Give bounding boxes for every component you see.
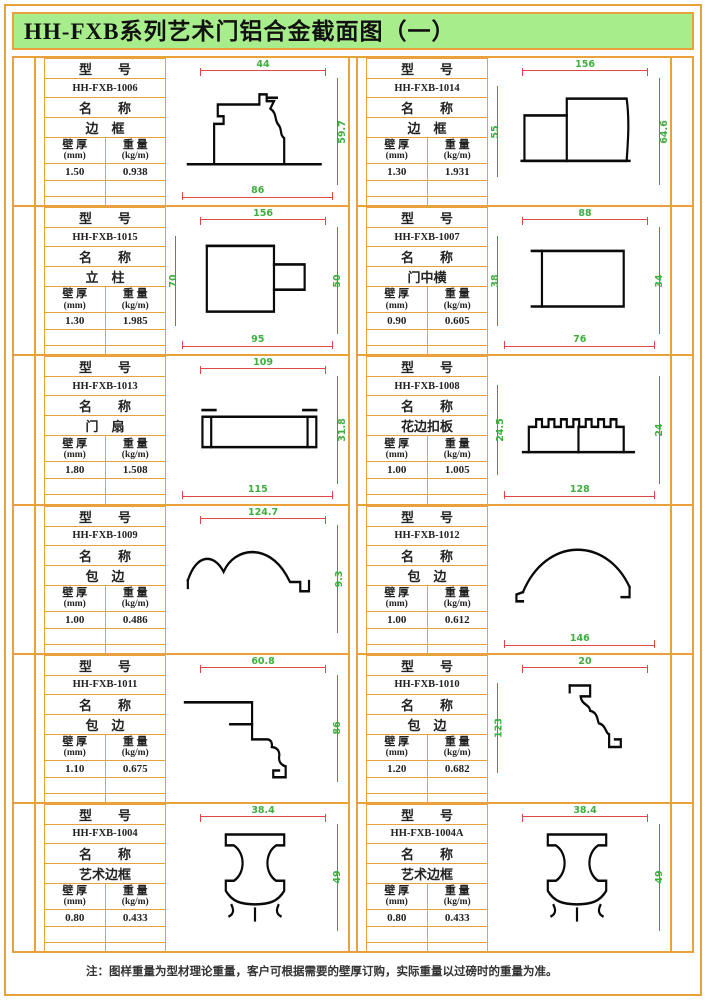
dimension-bottom: 76 xyxy=(504,338,655,350)
empty-cell xyxy=(427,777,488,793)
profile-outline xyxy=(523,549,630,591)
dimension-value: 156 xyxy=(522,59,649,70)
dimension-value: 50 xyxy=(332,274,343,287)
empty-cell xyxy=(367,181,428,197)
dimension-line xyxy=(337,227,338,334)
model-label: 型 号 xyxy=(367,208,488,228)
thickness-value: 1.20 xyxy=(367,760,428,777)
thickness-value: 1.10 xyxy=(45,760,106,777)
name-label: 名 称 xyxy=(45,98,166,118)
spec-table: 型 号 HH-FXB-1012 名 称 包 边 壁 厚(mm) 重 量(kg/m… xyxy=(366,506,488,655)
name-value: 包 边 xyxy=(367,714,488,734)
thickness-value: 0.80 xyxy=(45,909,106,926)
profile-outline xyxy=(532,251,542,307)
dimension-left: 24.5 xyxy=(491,385,503,475)
empty-cell xyxy=(45,628,106,644)
empty-cell xyxy=(367,628,428,644)
profile-panel: 型 号 HH-FXB-1004A 名 称 艺术边框 壁 厚(mm) 重 量(kg… xyxy=(358,804,670,951)
empty-cell xyxy=(105,197,166,208)
name-label: 名 称 xyxy=(45,694,166,714)
empty-cell xyxy=(45,793,106,804)
gutter-cell xyxy=(672,655,692,804)
dimension-line xyxy=(182,346,333,347)
thickness-value: 1.50 xyxy=(45,164,106,181)
name-value: 花边扣板 xyxy=(367,416,488,436)
dimension-value: 59.7 xyxy=(337,120,348,143)
dimension-line xyxy=(497,385,498,475)
empty-cell xyxy=(105,479,166,495)
empty-cell xyxy=(45,495,106,506)
cross-section-svg xyxy=(504,523,650,634)
left-gutter-column xyxy=(12,58,36,951)
dimension-top: 124.7 xyxy=(200,509,327,521)
name-label: 名 称 xyxy=(45,843,166,863)
weight-header: 重 量(kg/m) xyxy=(427,734,488,760)
profile-outline xyxy=(229,905,280,920)
name-label: 名 称 xyxy=(367,98,488,118)
empty-cell xyxy=(105,346,166,357)
thickness-header: 壁 厚(mm) xyxy=(45,883,106,909)
name-value: 边 框 xyxy=(367,118,488,138)
spec-table: 型 号 HH-FXB-1008 名 称 花边扣板 壁 厚(mm) 重 量(kg/… xyxy=(366,356,488,505)
profile-drawing: 10911531.8 xyxy=(168,359,344,500)
weight-header: 重 量(kg/m) xyxy=(105,138,166,164)
center-divider xyxy=(348,58,358,951)
profile-drawing: 1565564.6 xyxy=(490,61,666,202)
empty-cell xyxy=(45,926,106,942)
dimension-line xyxy=(522,70,649,71)
profile-outline xyxy=(529,420,624,453)
dimension-value: 49 xyxy=(332,871,343,884)
profile-outline xyxy=(185,702,252,724)
profile-outline xyxy=(226,834,284,904)
profile-outline xyxy=(214,94,284,164)
gutter-cell xyxy=(672,804,692,951)
dimension-value: 128 xyxy=(504,484,655,495)
dimension-value: 38.4 xyxy=(200,805,327,816)
empty-cell xyxy=(427,479,488,495)
dimension-line xyxy=(522,667,649,668)
profile-panel: 型 号 HH-FXB-1011 名 称 包 边 壁 厚(mm) 重 量(kg/m… xyxy=(36,655,348,804)
gutter-cell xyxy=(672,356,692,505)
weight-value: 1.985 xyxy=(105,313,166,330)
profile-drawing: 146 xyxy=(490,509,666,650)
empty-cell xyxy=(427,197,488,208)
dimension-line xyxy=(337,824,338,931)
profile-outline xyxy=(516,592,523,601)
name-value: 艺术边框 xyxy=(367,863,488,883)
dimension-right: 49 xyxy=(331,824,343,931)
profile-panel: 型 号 HH-FXB-1009 名 称 包 边 壁 厚(mm) 重 量(kg/m… xyxy=(36,506,348,655)
empty-cell xyxy=(427,793,488,804)
empty-cell xyxy=(105,793,166,804)
weight-header: 重 量(kg/m) xyxy=(427,436,488,462)
profile-outline xyxy=(211,417,307,447)
dimension-value: 31.8 xyxy=(337,418,348,441)
dimension-top: 156 xyxy=(522,61,649,73)
spec-table: 型 号 HH-FXB-1004A 名 称 艺术边框 壁 厚(mm) 重 量(kg… xyxy=(366,804,488,951)
name-label: 名 称 xyxy=(367,843,488,863)
empty-cell xyxy=(367,644,428,655)
weight-header: 重 量(kg/m) xyxy=(105,287,166,313)
gutter-cell xyxy=(14,356,34,505)
empty-cell xyxy=(105,644,166,655)
weight-header: 重 量(kg/m) xyxy=(105,734,166,760)
profile-outline xyxy=(207,246,274,312)
dimension-value: 9.3 xyxy=(334,571,345,588)
profile-panel: 型 号 HH-FXB-1006 名 称 边 框 壁 厚(mm) 重 量(kg/m… xyxy=(36,58,348,207)
cross-section-svg xyxy=(182,373,328,484)
outer-frame: HH-FXB系列艺术门铝合金截面图（一） 型 号 HH-FXB-1006 名 称… xyxy=(4,4,702,996)
model-label: 型 号 xyxy=(45,208,166,228)
empty-cell xyxy=(105,942,166,951)
thickness-value: 0.90 xyxy=(367,313,428,330)
name-value: 包 边 xyxy=(45,714,166,734)
weight-value: 1.508 xyxy=(105,462,166,479)
dimension-line xyxy=(200,219,327,220)
thickness-header: 壁 厚(mm) xyxy=(367,883,428,909)
dimension-value: 60.8 xyxy=(200,656,327,667)
spec-table: 型 号 HH-FXB-1014 名 称 边 框 壁 厚(mm) 重 量(kg/m… xyxy=(366,58,488,207)
profile-outline xyxy=(542,251,624,307)
name-label: 名 称 xyxy=(45,545,166,565)
dimension-top: 20 xyxy=(522,658,649,670)
empty-cell xyxy=(427,346,488,357)
spec-table: 型 号 HH-FXB-1010 名 称 包 边 壁 厚(mm) 重 量(kg/m… xyxy=(366,655,488,804)
model-value: HH-FXB-1007 xyxy=(367,228,488,247)
empty-cell xyxy=(45,942,106,951)
dimension-line xyxy=(200,518,327,519)
spec-table: 型 号 HH-FXB-1007 名 称 门中横 壁 厚(mm) 重 量(kg/m… xyxy=(366,207,488,356)
name-value: 边 框 xyxy=(45,118,166,138)
gutter-cell xyxy=(14,58,34,207)
thickness-value: 1.30 xyxy=(367,164,428,181)
profile-drawing: 20123 xyxy=(490,658,666,799)
profile-outline xyxy=(524,99,628,161)
profile-outline xyxy=(188,552,309,591)
empty-cell xyxy=(427,942,488,951)
profile-panel: 型 号 HH-FXB-1008 名 称 花边扣板 壁 厚(mm) 重 量(kg/… xyxy=(358,356,670,505)
spec-table: 型 号 HH-FXB-1015 名 称 立 柱 壁 厚(mm) 重 量(kg/m… xyxy=(44,207,166,356)
model-label: 型 号 xyxy=(367,59,488,79)
profile-panel: 型 号 HH-FXB-1014 名 称 边 框 壁 厚(mm) 重 量(kg/m… xyxy=(358,58,670,207)
weight-value: 0.605 xyxy=(427,313,488,330)
name-value: 立 柱 xyxy=(45,267,166,287)
weight-header: 重 量(kg/m) xyxy=(427,585,488,611)
cross-section-svg xyxy=(182,75,328,186)
dimension-bottom: 146 xyxy=(504,637,655,649)
model-label: 型 号 xyxy=(367,506,488,526)
gutter-cell xyxy=(14,506,34,655)
weight-value: 0.433 xyxy=(105,909,166,926)
dimension-value: 38 xyxy=(490,274,501,287)
empty-cell xyxy=(367,926,428,942)
dimension-line xyxy=(337,376,338,483)
dimension-line xyxy=(497,86,498,176)
empty-cell xyxy=(45,330,106,346)
thickness-header: 壁 厚(mm) xyxy=(367,436,428,462)
dimension-line xyxy=(659,376,660,483)
dimension-line xyxy=(200,667,327,668)
gutter-cell xyxy=(672,506,692,655)
dimension-right: 50 xyxy=(331,227,343,334)
weight-value: 1.005 xyxy=(427,462,488,479)
thickness-value: 1.00 xyxy=(367,462,428,479)
weight-header: 重 量(kg/m) xyxy=(105,585,166,611)
dimension-line xyxy=(175,236,176,326)
dimension-right: 64.6 xyxy=(653,78,665,185)
name-label: 名 称 xyxy=(367,396,488,416)
empty-cell xyxy=(105,330,166,346)
dimension-line xyxy=(182,496,333,497)
dimension-value: 115 xyxy=(182,484,333,495)
dimension-line xyxy=(337,78,338,185)
gutter-cell xyxy=(672,58,692,207)
dimension-value: 95 xyxy=(182,334,333,345)
cross-section-svg xyxy=(504,821,650,932)
profile-outline xyxy=(274,265,305,290)
dimension-left: 123 xyxy=(491,683,503,773)
empty-cell xyxy=(427,330,488,346)
empty-cell xyxy=(367,330,428,346)
dimension-value: 24 xyxy=(654,423,665,436)
dimension-value: 70 xyxy=(168,274,179,287)
gutter-cell xyxy=(14,207,34,356)
thickness-value: 1.80 xyxy=(45,462,106,479)
empty-cell xyxy=(427,926,488,942)
model-value: HH-FXB-1009 xyxy=(45,526,166,545)
dimension-left: 70 xyxy=(169,236,181,326)
gutter-cell xyxy=(14,804,34,951)
dimension-line xyxy=(497,683,498,773)
empty-cell xyxy=(105,777,166,793)
weight-value: 0.612 xyxy=(427,611,488,628)
dimension-line xyxy=(659,824,660,931)
dimension-bottom: 115 xyxy=(182,488,333,500)
empty-cell xyxy=(105,495,166,506)
empty-cell xyxy=(427,495,488,506)
model-label: 型 号 xyxy=(45,59,166,79)
dimension-line xyxy=(497,236,498,326)
empty-cell xyxy=(367,793,428,804)
empty-cell xyxy=(45,644,106,655)
name-label: 名 称 xyxy=(367,545,488,565)
dimension-left: 55 xyxy=(491,86,503,176)
profile-outline xyxy=(252,724,286,777)
model-label: 型 号 xyxy=(45,506,166,526)
dimension-top: 38.4 xyxy=(522,807,649,819)
dimension-line xyxy=(504,496,655,497)
profile-drawing: 12824.524 xyxy=(490,359,666,500)
dimension-value: 34 xyxy=(654,274,665,287)
profile-drawing: 124.79.3 xyxy=(168,509,344,650)
dimension-right: 49 xyxy=(653,824,665,931)
dimension-bottom: 95 xyxy=(182,338,333,350)
dimension-value: 64.6 xyxy=(659,120,670,143)
name-value: 门 扇 xyxy=(45,416,166,436)
profile-panel: 型 号 HH-FXB-1012 名 称 包 边 壁 厚(mm) 重 量(kg/m… xyxy=(358,506,670,655)
profile-outline xyxy=(551,905,602,920)
name-value: 门中横 xyxy=(367,267,488,287)
weight-header: 重 量(kg/m) xyxy=(427,287,488,313)
dimension-value: 86 xyxy=(182,185,333,196)
dimension-value: 156 xyxy=(200,208,327,219)
dimension-left: 38 xyxy=(491,236,503,326)
dimension-top: 60.8 xyxy=(200,658,327,670)
thickness-header: 壁 厚(mm) xyxy=(367,734,428,760)
grid-column-right: 型 号 HH-FXB-1014 名 称 边 框 壁 厚(mm) 重 量(kg/m… xyxy=(358,58,670,951)
name-value: 艺术边框 xyxy=(45,863,166,883)
footer-note: 注：图样重量为型材理论重量，客户可根据需要的壁厚订购，实际重量以过磅时的重量为准… xyxy=(86,963,700,979)
profile-panel: 型 号 HH-FXB-1015 名 称 立 柱 壁 厚(mm) 重 量(kg/m… xyxy=(36,207,348,356)
weight-value: 0.675 xyxy=(105,760,166,777)
cross-section-svg xyxy=(504,373,650,484)
dimension-right: 34 xyxy=(653,227,665,334)
dimension-value: 55 xyxy=(490,125,501,138)
model-label: 型 号 xyxy=(45,804,166,824)
dimension-right: 24 xyxy=(653,376,665,483)
profile-drawing: 88763834 xyxy=(490,210,666,351)
dimension-line xyxy=(337,675,338,782)
thickness-value: 1.00 xyxy=(45,611,106,628)
catalog-page: HH-FXB系列艺术门铝合金截面图（一） 型 号 HH-FXB-1006 名 称… xyxy=(0,0,706,1000)
dimension-line xyxy=(200,368,327,369)
model-label: 型 号 xyxy=(367,804,488,824)
empty-cell xyxy=(427,644,488,655)
dimension-bottom: 86 xyxy=(182,189,333,201)
dimension-top: 109 xyxy=(200,359,327,371)
empty-cell xyxy=(367,479,428,495)
profile-drawing: 156957050 xyxy=(168,210,344,351)
weight-value: 0.938 xyxy=(105,164,166,181)
model-value: HH-FXB-1015 xyxy=(45,228,166,247)
dimension-top: 44 xyxy=(200,61,327,73)
dimension-value: 123 xyxy=(493,718,504,738)
model-value: HH-FXB-1014 xyxy=(367,79,488,98)
thickness-value: 0.80 xyxy=(367,909,428,926)
model-value: HH-FXB-1008 xyxy=(367,377,488,396)
weight-header: 重 量(kg/m) xyxy=(105,436,166,462)
profile-panel: 型 号 HH-FXB-1004 名 称 艺术边框 壁 厚(mm) 重 量(kg/… xyxy=(36,804,348,951)
cross-section-svg xyxy=(182,672,328,783)
empty-cell xyxy=(105,926,166,942)
model-value: HH-FXB-1004 xyxy=(45,824,166,843)
empty-cell xyxy=(427,628,488,644)
empty-cell xyxy=(367,942,428,951)
dimension-line xyxy=(659,227,660,334)
spec-table: 型 号 HH-FXB-1011 名 称 包 边 壁 厚(mm) 重 量(kg/m… xyxy=(44,655,166,804)
dimension-line xyxy=(504,346,655,347)
dimension-value: 88 xyxy=(522,208,649,219)
profile-panel: 型 号 HH-FXB-1010 名 称 包 边 壁 厚(mm) 重 量(kg/m… xyxy=(358,655,670,804)
thickness-value: 1.00 xyxy=(367,611,428,628)
model-label: 型 号 xyxy=(367,357,488,377)
dimension-right: 31.8 xyxy=(331,376,343,483)
name-label: 名 称 xyxy=(45,396,166,416)
empty-cell xyxy=(45,479,106,495)
model-value: HH-FXB-1004A xyxy=(367,824,488,843)
model-label: 型 号 xyxy=(45,357,166,377)
thickness-header: 壁 厚(mm) xyxy=(45,436,106,462)
empty-cell xyxy=(45,346,106,357)
profile-outline xyxy=(570,685,621,746)
weight-header: 重 量(kg/m) xyxy=(105,883,166,909)
profile-outline xyxy=(548,834,606,904)
weight-value: 1.931 xyxy=(427,164,488,181)
model-value: HH-FXB-1013 xyxy=(45,377,166,396)
gutter-cell xyxy=(14,655,34,804)
dimension-top: 156 xyxy=(200,210,327,222)
cross-section-svg xyxy=(504,672,650,783)
weight-value: 0.486 xyxy=(105,611,166,628)
empty-cell xyxy=(105,181,166,197)
empty-cell xyxy=(367,777,428,793)
dimension-right: 9.3 xyxy=(331,525,343,632)
name-label: 名 称 xyxy=(367,694,488,714)
weight-header: 重 量(kg/m) xyxy=(427,883,488,909)
right-gutter-column xyxy=(670,58,694,951)
cross-section-svg xyxy=(504,75,650,186)
profile-outline xyxy=(202,417,316,447)
profile-outline xyxy=(622,587,630,597)
weight-header: 重 量(kg/m) xyxy=(427,138,488,164)
dimension-line xyxy=(522,219,649,220)
thickness-header: 壁 厚(mm) xyxy=(367,138,428,164)
dimension-value: 86 xyxy=(332,722,343,735)
dimension-line xyxy=(522,816,649,817)
dimension-line xyxy=(200,816,327,817)
thickness-header: 壁 厚(mm) xyxy=(45,734,106,760)
empty-cell xyxy=(45,181,106,197)
empty-cell xyxy=(45,777,106,793)
empty-cell xyxy=(367,346,428,357)
model-label: 型 号 xyxy=(45,655,166,675)
profile-grid: 型 号 HH-FXB-1006 名 称 边 框 壁 厚(mm) 重 量(kg/m… xyxy=(12,56,694,953)
weight-value: 0.433 xyxy=(427,909,488,926)
profile-drawing: 38.449 xyxy=(168,807,344,948)
page-title: HH-FXB系列艺术门铝合金截面图（一） xyxy=(12,12,694,50)
dimension-line xyxy=(337,525,338,632)
thickness-value: 1.30 xyxy=(45,313,106,330)
dimension-value: 109 xyxy=(200,357,327,368)
dimension-value: 76 xyxy=(504,334,655,345)
spec-table: 型 号 HH-FXB-1006 名 称 边 框 壁 厚(mm) 重 量(kg/m… xyxy=(44,58,166,207)
dimension-bottom: 128 xyxy=(504,488,655,500)
spec-table: 型 号 HH-FXB-1004 名 称 艺术边框 壁 厚(mm) 重 量(kg/… xyxy=(44,804,166,951)
dimension-line xyxy=(659,78,660,185)
model-value: HH-FXB-1010 xyxy=(367,675,488,694)
dimension-value: 146 xyxy=(504,633,655,644)
thickness-header: 壁 厚(mm) xyxy=(45,287,106,313)
dimension-value: 20 xyxy=(522,656,649,667)
cross-section-svg xyxy=(504,224,650,335)
name-label: 名 称 xyxy=(45,247,166,267)
dimension-value: 44 xyxy=(200,59,327,70)
model-value: HH-FXB-1012 xyxy=(367,526,488,545)
name-value: 包 边 xyxy=(367,565,488,585)
dimension-top: 88 xyxy=(522,210,649,222)
empty-cell xyxy=(427,181,488,197)
cross-section-svg xyxy=(182,523,328,634)
profile-panel: 型 号 HH-FXB-1013 名 称 门 扇 壁 厚(mm) 重 量(kg/m… xyxy=(36,356,348,505)
profile-drawing: 38.449 xyxy=(490,807,666,948)
spec-table: 型 号 HH-FXB-1009 名 称 包 边 壁 厚(mm) 重 量(kg/m… xyxy=(44,506,166,655)
dimension-line xyxy=(182,197,333,198)
dimension-value: 49 xyxy=(654,871,665,884)
model-value: HH-FXB-1011 xyxy=(45,675,166,694)
profile-drawing: 60.886 xyxy=(168,658,344,799)
name-label: 名 称 xyxy=(367,247,488,267)
